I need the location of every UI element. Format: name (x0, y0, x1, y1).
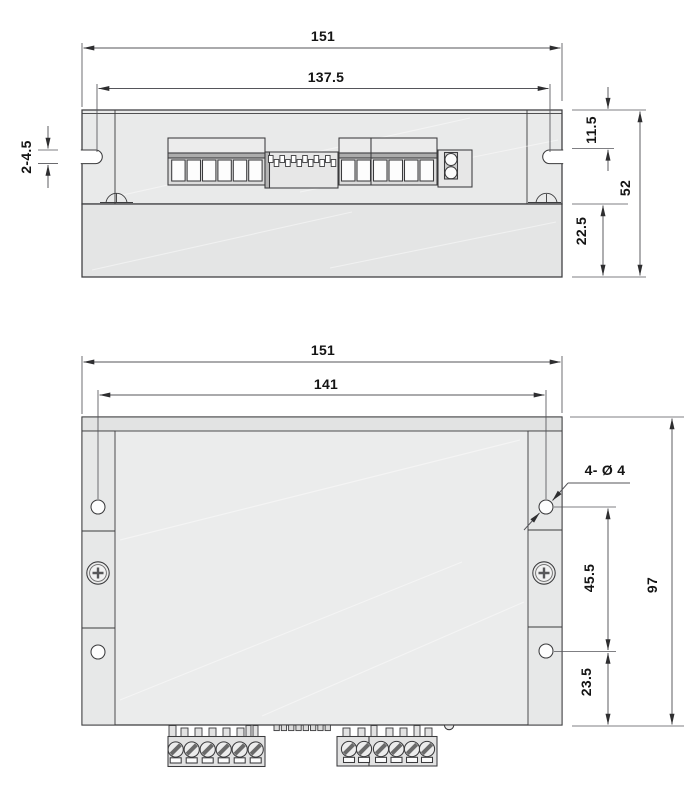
tab (181, 728, 188, 737)
terminal-screw (216, 742, 231, 763)
front-view (82, 417, 562, 767)
terminal-cell (249, 160, 262, 181)
pin (274, 160, 279, 167)
top-view (81, 110, 563, 277)
terminal-screw (168, 742, 183, 763)
pin (331, 160, 336, 167)
bottom-terminal-block-right (337, 726, 437, 767)
pin (303, 725, 308, 731)
terminal-screw (389, 741, 404, 762)
dim-label-151-front: 151 (311, 342, 335, 358)
tab (386, 728, 393, 737)
terminal-screw (373, 741, 388, 762)
terminal-cell (203, 160, 216, 181)
terminal-screw (232, 742, 247, 763)
tab (223, 728, 230, 737)
terminal-cell (218, 160, 231, 181)
dim-label-137-5: 137.5 (308, 69, 345, 85)
pin (296, 725, 301, 731)
flange-screw-right (533, 562, 555, 584)
terminal-lid (168, 138, 265, 153)
tab (358, 728, 365, 737)
cable-notch (444, 725, 453, 730)
terminal-screw (184, 742, 199, 763)
dimension-drawing: 151 137.5 2-4.5 11.5 52 22.5 151 (0, 0, 698, 800)
pin (314, 156, 319, 163)
dim-22-5: 22.5 (572, 204, 628, 276)
dim-label-22-5: 22.5 (573, 217, 589, 245)
dim-label-45-5: 45.5 (581, 564, 597, 592)
terminal-cell (357, 160, 371, 181)
tab (371, 726, 377, 737)
terminal-screw (200, 742, 215, 763)
top-edge-strip (82, 417, 562, 431)
mounting-slot-left (81, 150, 103, 164)
tab (237, 728, 244, 737)
pin (308, 160, 313, 167)
base-plate (82, 204, 562, 277)
mounting-hole-top-left (91, 500, 105, 514)
dim-23-5: 23.5 (572, 653, 684, 726)
dim-11-5: 11.5 (572, 87, 646, 171)
flange-screw-left (87, 562, 109, 584)
dim-label-11-5: 11.5 (583, 116, 599, 144)
terminal-cell (420, 160, 434, 181)
pin (326, 156, 331, 163)
dim-45-5: 45.5 (554, 507, 616, 652)
tab (343, 728, 350, 737)
pin (269, 156, 274, 163)
dim-label-4-d4: 4- Ø 4 (585, 462, 626, 478)
dim-label-23-5: 23.5 (578, 668, 594, 696)
terminal-band (339, 153, 437, 158)
tab (253, 726, 258, 737)
pin (281, 725, 286, 731)
terminal-lid (371, 138, 437, 153)
dim-label-97: 97 (644, 577, 660, 593)
tab (400, 728, 407, 737)
pin (320, 160, 325, 167)
drawing-page: 151 137.5 2-4.5 11.5 52 22.5 151 (0, 0, 698, 800)
pin (297, 160, 302, 167)
dim-label-141: 141 (314, 376, 338, 392)
tab (169, 726, 176, 737)
front-panel (82, 417, 562, 725)
terminal-cell (187, 160, 200, 181)
terminal-screw (419, 741, 434, 762)
mounting-hole-bottom-left (91, 645, 105, 659)
tab (195, 728, 202, 737)
pin (274, 725, 279, 731)
led-bottom (445, 167, 457, 179)
led-indicator-block (438, 150, 472, 187)
terminal-lid (339, 138, 371, 153)
pin (280, 156, 285, 163)
terminal-cell (233, 160, 246, 181)
pin-row (274, 725, 330, 731)
dim-label-2-4-5: 2-4.5 (18, 140, 34, 173)
pin (286, 160, 291, 167)
bottom-terminal-block-6p (168, 726, 265, 767)
led-top (445, 154, 457, 166)
dip-connector-side (265, 152, 338, 188)
pin (303, 156, 308, 163)
terminal-block-6p-side (168, 138, 265, 185)
mounting-hole-top-right (539, 500, 553, 514)
terminal-screw (341, 741, 356, 762)
pin (325, 725, 330, 731)
pin (291, 156, 296, 163)
tab (425, 728, 432, 737)
tab (414, 726, 420, 737)
mounting-slot-right (543, 150, 564, 164)
pin (289, 725, 294, 731)
dim-label-52: 52 (617, 180, 633, 196)
terminal-cell (389, 160, 403, 181)
terminal-cell (172, 160, 185, 181)
terminal-cell (405, 160, 419, 181)
dim-slot-2-4-5: 2-4.5 (18, 126, 58, 188)
tab (246, 726, 251, 737)
pin (311, 725, 316, 731)
dim-width-151-top: 151 (82, 28, 562, 107)
terminal-screw (248, 742, 263, 763)
terminal-block-right-side (339, 138, 437, 185)
terminal-screw (356, 741, 371, 762)
terminal-cell (374, 160, 388, 181)
pin (318, 725, 323, 731)
dim-label-151-top: 151 (311, 28, 335, 44)
terminal-cell (342, 160, 356, 181)
terminal-screw (404, 741, 419, 762)
terminal-band (168, 153, 265, 158)
tab (209, 728, 216, 737)
mounting-hole-bottom-right (539, 644, 553, 658)
